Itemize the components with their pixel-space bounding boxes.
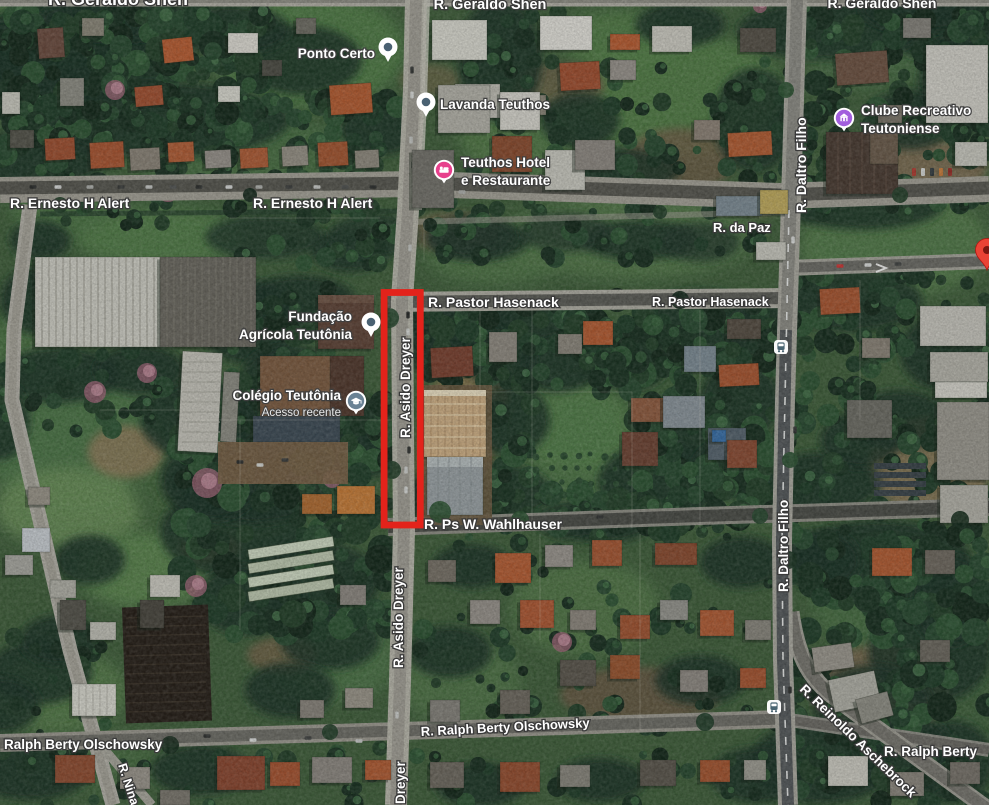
- svg-text:R. Asido Dreyer: R. Asido Dreyer: [398, 336, 413, 438]
- svg-text:R. Ernesto H Alert: R. Ernesto H Alert: [253, 195, 373, 211]
- svg-text:Teuthos Hotel: Teuthos Hotel: [461, 155, 550, 170]
- svg-text:R. Daltro Filho: R. Daltro Filho: [793, 117, 809, 213]
- svg-text:Ponto Certo: Ponto Certo: [298, 46, 375, 61]
- svg-text:Ralph Berty Olschowsky: Ralph Berty Olschowsky: [4, 737, 163, 752]
- svg-text:R. Geraldo Shen: R. Geraldo Shen: [48, 0, 188, 9]
- svg-text:R. Geraldo Shen: R. Geraldo Shen: [828, 0, 937, 11]
- svg-text:Fundação: Fundação: [288, 309, 352, 324]
- svg-text:R. Pastor Hasenack: R. Pastor Hasenack: [428, 294, 559, 310]
- svg-text:Lavanda Teuthos: Lavanda Teuthos: [440, 97, 550, 112]
- svg-text:R. Asido Dreyer: R. Asido Dreyer: [393, 760, 408, 805]
- svg-text:R. Geraldo Shen: R. Geraldo Shen: [434, 0, 547, 13]
- svg-text:R. Pastor Hasenack: R. Pastor Hasenack: [652, 295, 769, 309]
- svg-text:R. Ps W. Wahlhauser: R. Ps W. Wahlhauser: [424, 516, 563, 532]
- svg-text:Agrícola Teutônia: Agrícola Teutônia: [239, 327, 353, 342]
- svg-text:R. Daltro Filho: R. Daltro Filho: [776, 500, 791, 592]
- svg-text:Colégio Teutônia: Colégio Teutônia: [233, 388, 342, 403]
- svg-text:R. da Paz: R. da Paz: [713, 220, 771, 235]
- svg-text:R. Ernesto H Alert: R. Ernesto H Alert: [10, 195, 130, 211]
- svg-text:Acesso recente: Acesso recente: [262, 407, 341, 419]
- svg-text:Clube Recreativo: Clube Recreativo: [861, 103, 971, 118]
- svg-text:R. Ralph Berty: R. Ralph Berty: [884, 744, 978, 759]
- svg-text:Teutoniense: Teutoniense: [861, 121, 940, 136]
- svg-text:R. Asido Dreyer: R. Asido Dreyer: [391, 566, 406, 668]
- svg-text:e Restaurante: e Restaurante: [461, 173, 551, 188]
